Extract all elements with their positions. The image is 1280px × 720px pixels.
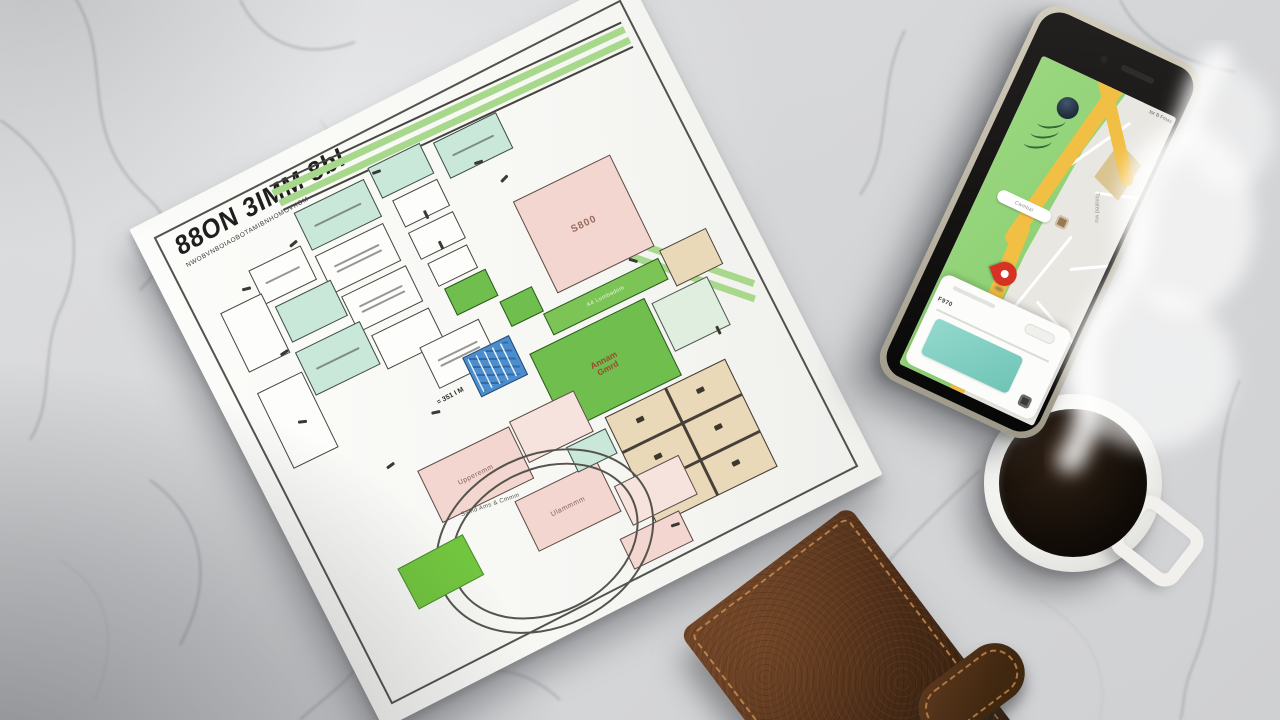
text-bar <box>334 244 380 268</box>
plan-tick <box>386 462 395 470</box>
s800-label: S800 <box>569 213 598 235</box>
text-bar <box>316 347 360 370</box>
plan-tick <box>431 410 440 415</box>
cell-mark <box>653 452 662 460</box>
street-line <box>1070 264 1114 271</box>
text-bar <box>452 134 494 156</box>
text-bar <box>265 266 300 284</box>
plan-block-green <box>499 286 544 327</box>
phone-camera-icon <box>1100 55 1109 64</box>
vein-path <box>150 480 200 645</box>
street-label: Tsaated wu <box>1093 192 1100 222</box>
vein-path <box>1040 600 1103 720</box>
plan-tick <box>500 174 508 183</box>
vein-path <box>0 120 74 440</box>
cell-mark <box>731 459 740 467</box>
poi-square-icon <box>1054 214 1070 230</box>
scene: 88ON 3IMM 8bI NWOBVNBOIAOBOTAMIBNHOMOVKO… <box>0 0 1280 720</box>
vein-path <box>240 0 355 50</box>
plan-tick <box>242 286 251 291</box>
map-control-icon <box>1017 393 1033 409</box>
sheet-side-label: F970 <box>937 296 954 308</box>
cell-mark <box>635 416 644 424</box>
teal-action-button <box>920 317 1024 394</box>
pin-dot <box>1000 269 1010 279</box>
phone-speaker-icon <box>1120 64 1155 85</box>
vein-path <box>860 30 905 195</box>
text-bar <box>314 203 361 227</box>
park-label: Annam Gmrd <box>589 350 623 380</box>
cell-mark <box>714 422 723 430</box>
vein-path <box>60 560 108 700</box>
plan-block-beige <box>659 228 723 287</box>
strip-label: A4 Lumbadom <box>586 285 626 308</box>
cell-mark <box>696 386 705 394</box>
center-note: = 351 I M <box>436 386 465 406</box>
sheet-pill <box>1023 322 1057 345</box>
map-status-text: tor B Fmas <box>1148 109 1173 125</box>
